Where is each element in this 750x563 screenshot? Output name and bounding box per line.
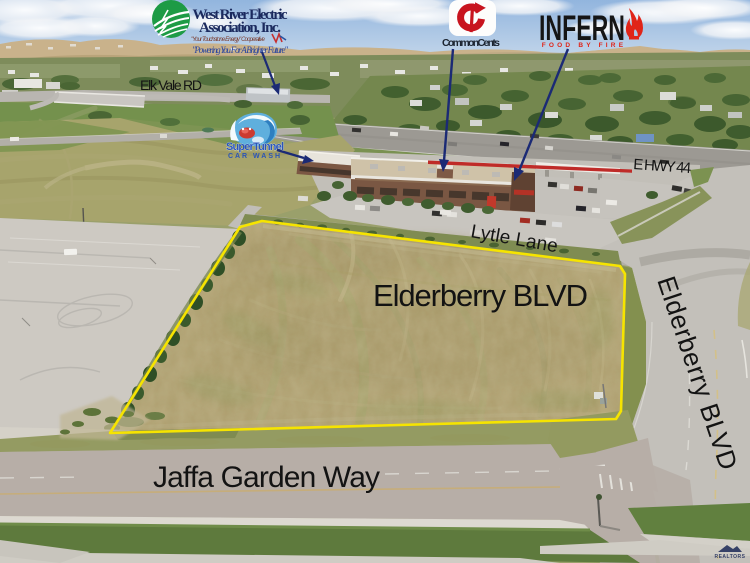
svg-text:Elk Vale RD: Elk Vale RD (140, 77, 202, 93)
svg-text:CommonCents: CommonCents (442, 37, 500, 49)
svg-text:REALTORS: REALTORS (714, 554, 745, 560)
svg-text:"Your Touchstone Energy" Coope: "Your Touchstone Energy" Cooperative (191, 37, 266, 43)
svg-text:"Powering You For A Brighter F: "Powering You For A Brighter Future" (192, 45, 288, 55)
svg-text:FOOD BY FIRE: FOOD BY FIRE (542, 42, 627, 49)
svg-text:SuperTunnel: SuperTunnel (226, 141, 284, 153)
svg-text:Jaffa Garden Way: Jaffa Garden Way (153, 461, 380, 494)
svg-text:CAR WASH: CAR WASH (228, 153, 282, 160)
svg-text:Association, Inc.: Association, Inc. (199, 20, 281, 36)
svg-text:Elderberry BLVD: Elderberry BLVD (373, 278, 588, 313)
